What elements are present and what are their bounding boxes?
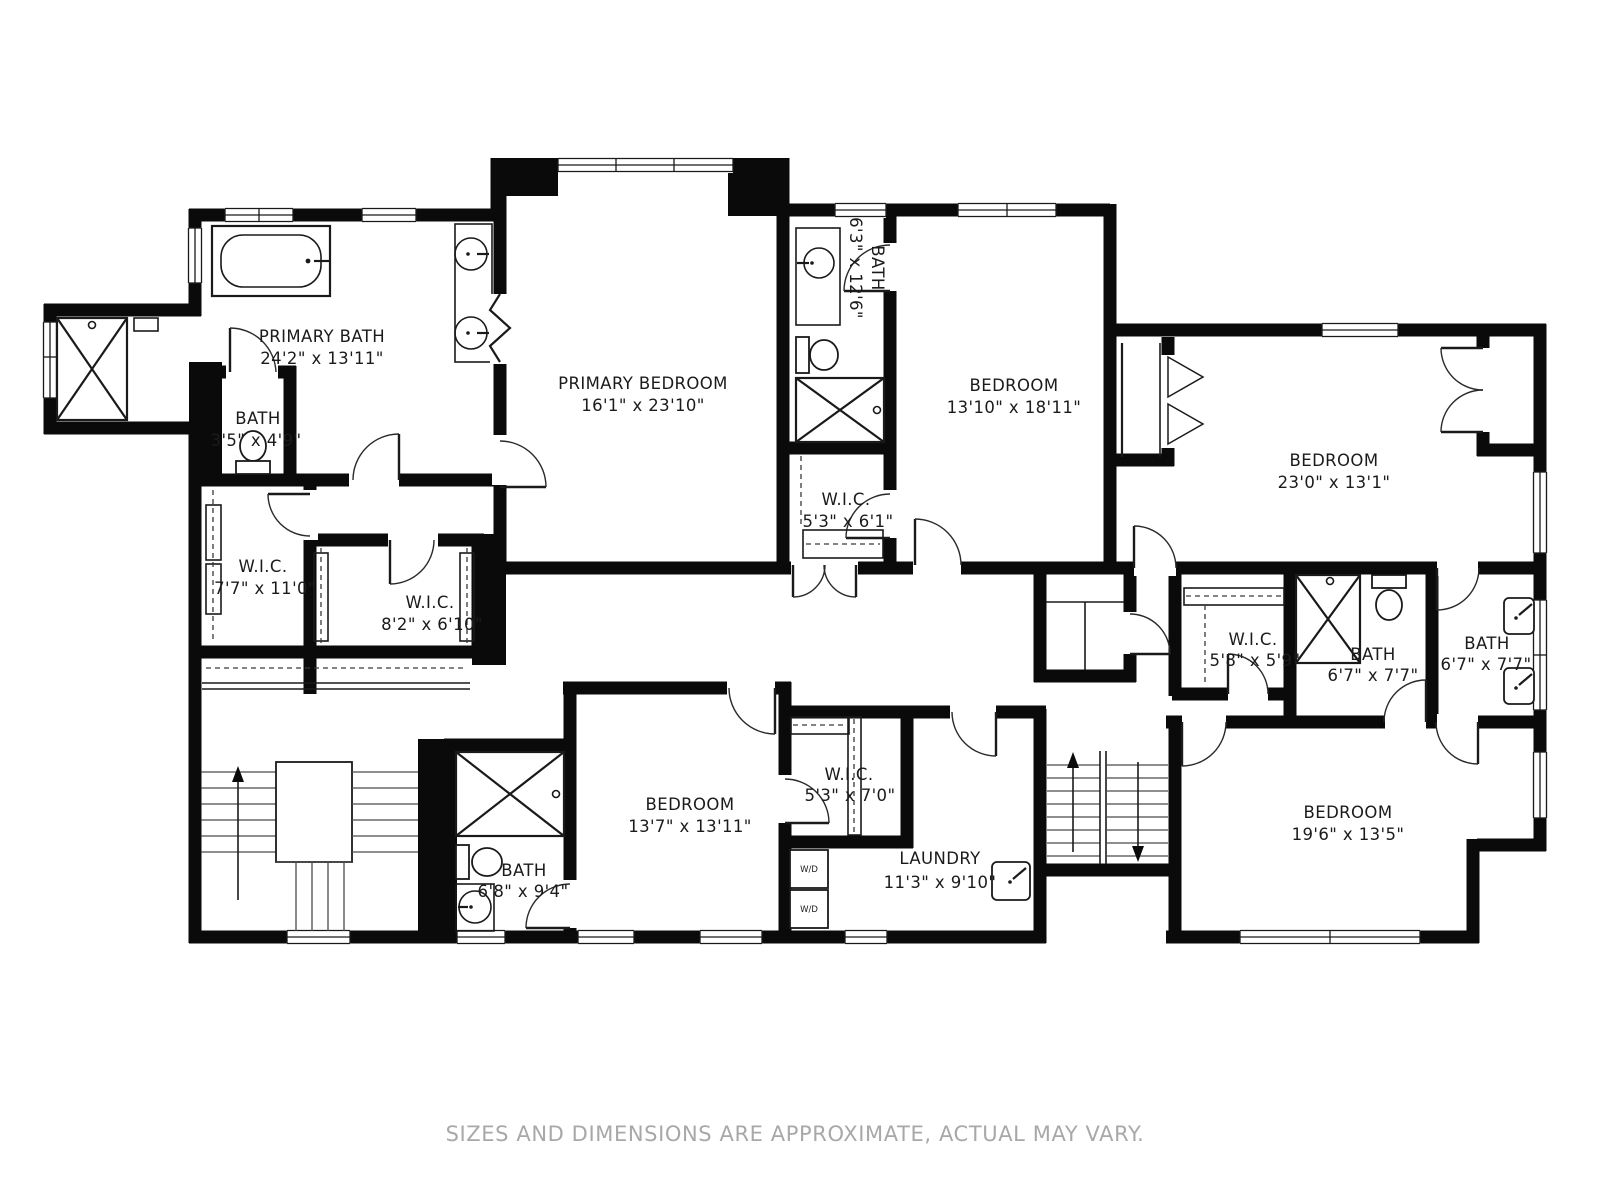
door-icon — [268, 490, 318, 540]
room-dims-wic-small: 5'3" x 6'1" — [803, 512, 894, 531]
room-dims-bedroom-bottom-right: 19'6" x 13'5" — [1292, 825, 1405, 844]
door-icon — [1182, 714, 1226, 766]
window-icon — [1532, 752, 1548, 818]
bathtub-icon — [212, 226, 330, 296]
room-label-wic-small: W.I.C. — [822, 490, 871, 509]
room-dims-bath-shared-right: 6'7" x 7'7" — [1441, 655, 1532, 674]
window-icon — [287, 929, 350, 945]
door-icon — [1437, 560, 1479, 610]
room-label-bath-shared-left: BATH — [1350, 645, 1395, 664]
room-label-wic-mid: W.I.C. — [406, 593, 455, 612]
door-icon — [1122, 612, 1170, 654]
toilet-icon — [796, 337, 838, 373]
room-dims-laundry: 11'3" x 9'10" — [884, 873, 997, 892]
room-label-bedroom-bottom-right: BEDROOM — [1304, 803, 1393, 822]
room-dims-wic-bottom: 5'3" x 7'0" — [805, 786, 896, 805]
disclaimer-text: SIZES AND DIMENSIONS ARE APPROXIMATE, AC… — [446, 1122, 1145, 1146]
window-icon — [1322, 322, 1398, 338]
room-label-bath-small: BATH — [235, 409, 280, 428]
room-label-wic-right: W.I.C. — [1229, 630, 1278, 649]
room-dims-bedroom-bottom: 13'7" x 13'11" — [628, 817, 752, 836]
room-dims-bedroom-right: 23'0" x 13'1" — [1278, 473, 1391, 492]
room-label-bedroom-right: BEDROOM — [1290, 451, 1379, 470]
window-icon — [225, 207, 293, 223]
room-label-primary-bath: PRIMARY BATH — [259, 327, 385, 346]
closet-icon — [1122, 343, 1160, 457]
door-icon — [913, 519, 961, 576]
window-icon — [958, 202, 1056, 218]
wall-break-icon — [490, 294, 510, 364]
washer-dryer-label: W/D — [800, 865, 818, 875]
toilet-icon — [1372, 575, 1406, 620]
window-icon — [558, 157, 733, 173]
door-icon — [349, 434, 399, 488]
window-icon — [578, 929, 634, 945]
window-icon — [845, 929, 887, 945]
sink-icon — [796, 228, 840, 325]
utility-sink-icon — [992, 862, 1030, 900]
toilet-icon — [456, 845, 502, 879]
floor-plan-page: W/D W/D — [0, 0, 1600, 1200]
washer-dryer-label: W/D — [800, 905, 818, 915]
room-dims-bath-shared-left: 6'7" x 7'7" — [1328, 666, 1419, 685]
window-icon — [362, 207, 416, 223]
room-label-bath-shared-right: BATH — [1464, 634, 1509, 653]
shower-icon — [57, 318, 158, 420]
room-dims-primary-bedroom: 16'1" x 23'10" — [581, 396, 705, 415]
door-icon — [492, 435, 546, 487]
door-icon — [1436, 714, 1478, 764]
room-label-primary-bedroom: PRIMARY BEDROOM — [558, 374, 728, 393]
room-label-bath-ensuite-group: BATH 6'3" x 12'6" — [846, 217, 887, 319]
room-labels: PRIMARY BATH 24'2" x 13'11" BATH 3'5" x … — [211, 217, 1532, 901]
door-icon — [388, 532, 438, 584]
bifold-door-icon — [1168, 357, 1203, 444]
staircase-main-icon — [1047, 751, 1168, 864]
room-dims-wic-mid: 8'2" x 6'10" — [381, 615, 483, 634]
window-icon — [1532, 472, 1548, 553]
room-dims-bath-bottom: 6'8" x 9'4" — [478, 882, 569, 901]
room-dims-bath-ensuite: 6'3" x 12'6" — [846, 217, 865, 319]
door-icon — [950, 704, 996, 756]
linen-closet-icon — [1046, 602, 1124, 670]
door-icon — [1134, 526, 1176, 576]
window-icon — [1240, 929, 1420, 945]
double-door-icon — [1441, 348, 1491, 432]
room-label-bedroom-bottom: BEDROOM — [646, 795, 735, 814]
stairs — [201, 751, 1168, 931]
washer-dryer-icon: W/D W/D — [790, 850, 828, 928]
room-dims-wic-right: 5'8" x 5'9" — [1210, 651, 1301, 670]
staircase-left-icon — [201, 762, 418, 931]
room-label-laundry: LAUNDRY — [899, 849, 981, 868]
room-label-wic-left: W.I.C. — [239, 557, 288, 576]
room-label-bedroom-top: BEDROOM — [970, 376, 1059, 395]
room-dims-bedroom-top: 13'10" x 18'11" — [947, 398, 1082, 417]
room-dims-primary-bath: 24'2" x 13'11" — [260, 349, 384, 368]
room-label-bath-ensuite: BATH — [868, 245, 887, 290]
shower-icon — [796, 378, 884, 442]
window-icon — [42, 322, 58, 398]
room-label-bath-bottom: BATH — [501, 861, 546, 880]
door-icon — [1384, 680, 1426, 730]
sink-icon — [455, 224, 492, 362]
window-icon — [187, 228, 203, 283]
window-icon — [835, 202, 886, 218]
floor-plan: W/D W/D — [0, 0, 1600, 1200]
room-dims-wic-left: 7'7" x 11'0" — [214, 579, 316, 598]
room-label-wic-bottom: W.I.C. — [825, 765, 874, 784]
double-door-icon — [791, 560, 858, 597]
door-icon — [727, 680, 775, 734]
room-dims-bath-small: 3'5" x 4'9" — [211, 431, 302, 450]
hall-closet-icon — [202, 668, 470, 689]
shower-icon — [456, 752, 564, 836]
window-icon — [700, 929, 762, 945]
